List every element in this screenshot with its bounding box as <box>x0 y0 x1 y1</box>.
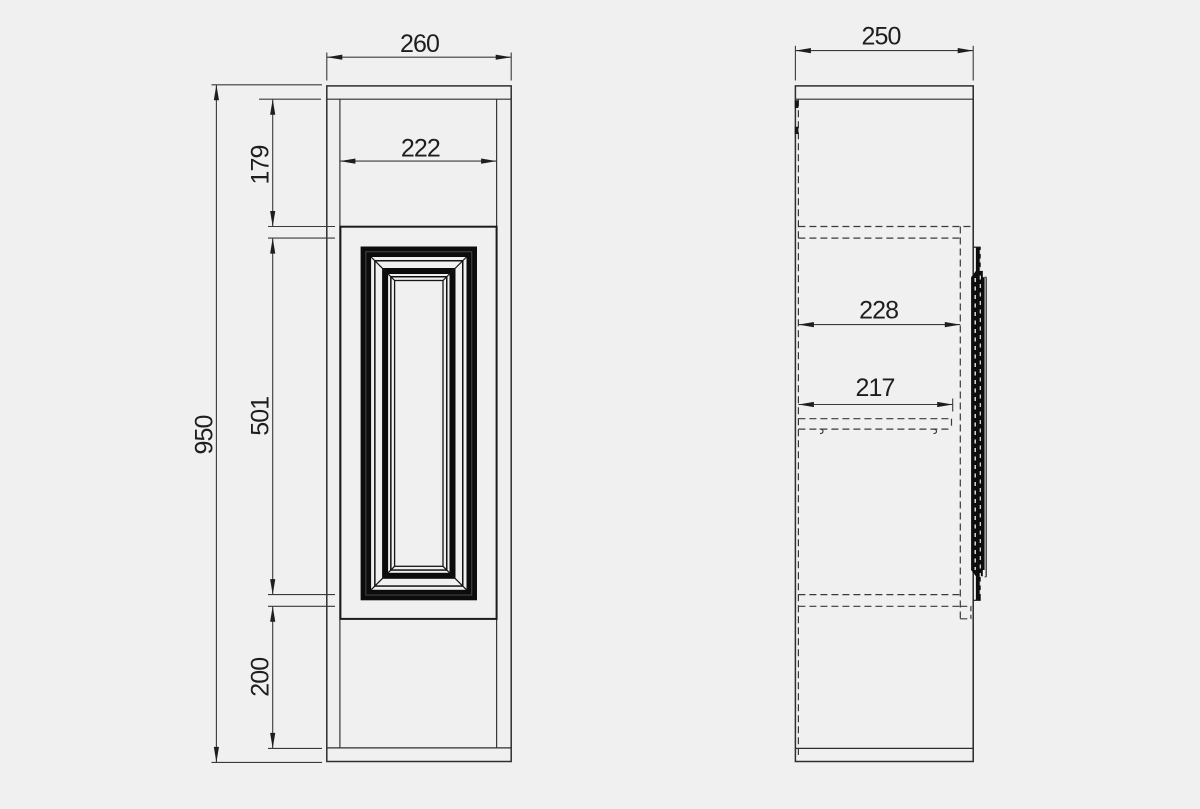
svg-text:501: 501 <box>246 397 274 436</box>
svg-text:228: 228 <box>859 297 898 325</box>
svg-text:250: 250 <box>861 23 900 51</box>
svg-text:217: 217 <box>855 374 894 402</box>
svg-text:950: 950 <box>190 415 218 454</box>
svg-text:179: 179 <box>246 145 274 184</box>
svg-text:260: 260 <box>400 30 439 58</box>
svg-text:200: 200 <box>246 658 274 697</box>
svg-text:222: 222 <box>401 135 440 163</box>
